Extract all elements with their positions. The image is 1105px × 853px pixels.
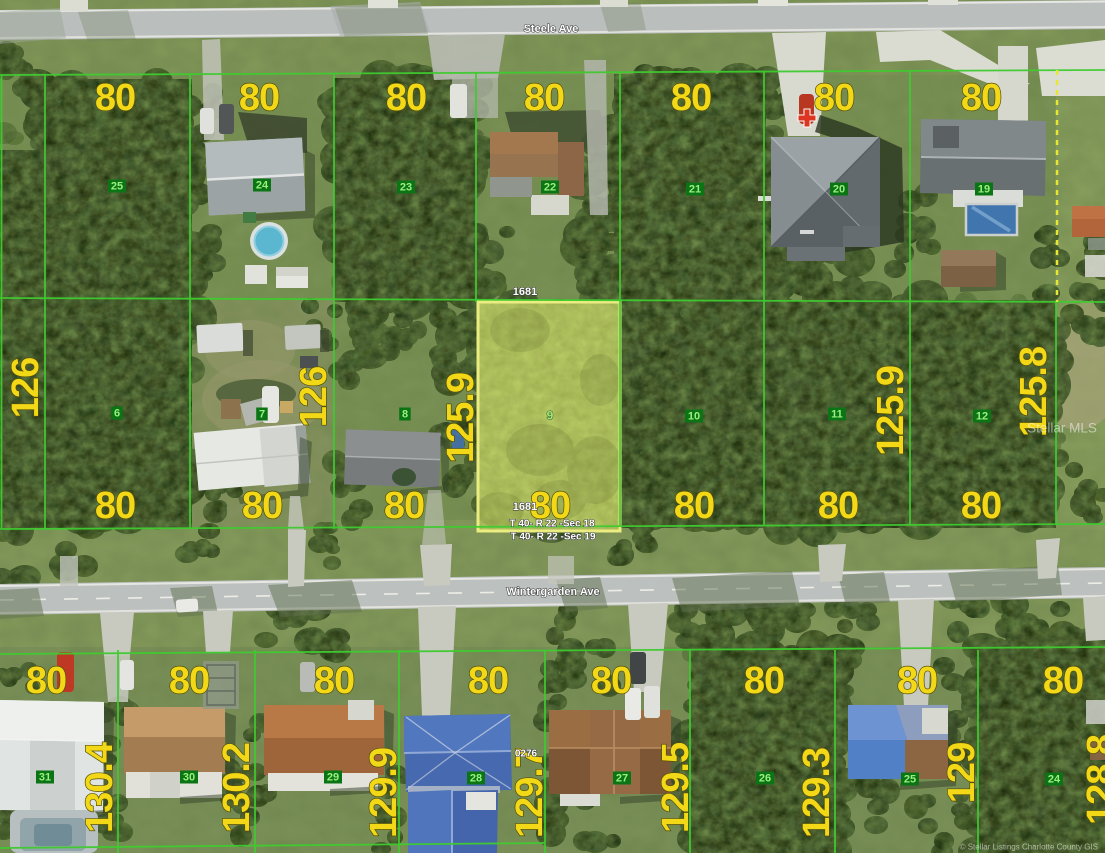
svg-text:80: 80 <box>814 77 854 119</box>
svg-text:0276: 0276 <box>515 749 538 760</box>
svg-text:T 40- R 22 -Sec 18: T 40- R 22 -Sec 18 <box>509 519 594 530</box>
svg-text:130.2: 130.2 <box>216 743 258 833</box>
svg-text:Stellar MLS: Stellar MLS <box>1027 421 1097 436</box>
svg-text:129.5: 129.5 <box>655 742 697 833</box>
svg-text:25: 25 <box>111 181 123 193</box>
svg-text:80: 80 <box>242 485 282 527</box>
svg-text:24: 24 <box>256 180 269 192</box>
svg-text:126: 126 <box>293 367 335 427</box>
svg-text:80: 80 <box>314 660 354 702</box>
svg-text:80: 80 <box>1043 660 1083 702</box>
svg-text:26: 26 <box>759 773 771 785</box>
svg-text:29: 29 <box>327 772 339 784</box>
svg-text:80: 80 <box>239 77 279 119</box>
svg-text:125.9: 125.9 <box>870 366 912 456</box>
svg-text:1681: 1681 <box>513 286 537 298</box>
svg-text:30: 30 <box>183 772 195 784</box>
svg-text:21: 21 <box>689 184 701 196</box>
svg-text:129: 129 <box>941 743 983 803</box>
svg-text:10: 10 <box>688 411 700 423</box>
svg-text:80: 80 <box>26 660 66 702</box>
svg-text:80: 80 <box>468 660 508 702</box>
svg-text:80: 80 <box>671 77 711 119</box>
svg-text:80: 80 <box>95 485 135 527</box>
svg-text:80: 80 <box>386 77 426 119</box>
svg-text:80: 80 <box>591 660 631 702</box>
svg-text:1681: 1681 <box>513 501 537 513</box>
svg-text:129.7: 129.7 <box>509 748 551 838</box>
svg-text:12: 12 <box>976 411 988 423</box>
svg-text:25: 25 <box>904 774 916 786</box>
svg-text:20: 20 <box>833 184 845 196</box>
svg-text:80: 80 <box>961 77 1001 119</box>
svg-text:80: 80 <box>961 485 1001 527</box>
svg-text:129.9: 129.9 <box>363 748 405 838</box>
svg-text:31: 31 <box>39 772 51 784</box>
svg-text:27: 27 <box>616 773 628 785</box>
svg-text:80: 80 <box>897 660 937 702</box>
svg-text:24: 24 <box>1048 774 1061 786</box>
svg-text:80: 80 <box>744 660 784 702</box>
svg-text:6: 6 <box>114 408 120 420</box>
svg-text:80: 80 <box>674 485 714 527</box>
svg-text:Steele Ave: Steele Ave <box>524 23 579 35</box>
svg-text:19: 19 <box>978 184 990 196</box>
svg-text:130.4: 130.4 <box>79 742 121 833</box>
svg-text:126: 126 <box>5 358 47 418</box>
svg-text:11: 11 <box>831 409 843 421</box>
svg-text:125.9: 125.9 <box>440 373 482 463</box>
svg-text:129.3: 129.3 <box>796 748 838 838</box>
svg-text:128.8: 128.8 <box>1080 735 1105 825</box>
svg-text:7: 7 <box>259 409 265 421</box>
svg-text:© Stellar Listings Charlotte: © Stellar Listings Charlotte County GIS <box>960 843 1098 852</box>
svg-text:80: 80 <box>95 77 135 119</box>
svg-text:80: 80 <box>818 485 858 527</box>
svg-text:80: 80 <box>169 660 209 702</box>
svg-text:22: 22 <box>544 182 556 194</box>
svg-text:80: 80 <box>384 485 424 527</box>
svg-text:Wintergarden Ave: Wintergarden Ave <box>506 586 599 598</box>
svg-text:8: 8 <box>402 409 408 421</box>
svg-text:28: 28 <box>470 773 482 785</box>
svg-text:9: 9 <box>547 409 554 423</box>
svg-text:23: 23 <box>400 182 412 194</box>
svg-text:T 40- R 22 -Sec 19: T 40- R 22 -Sec 19 <box>510 532 595 543</box>
svg-text:80: 80 <box>524 77 564 119</box>
